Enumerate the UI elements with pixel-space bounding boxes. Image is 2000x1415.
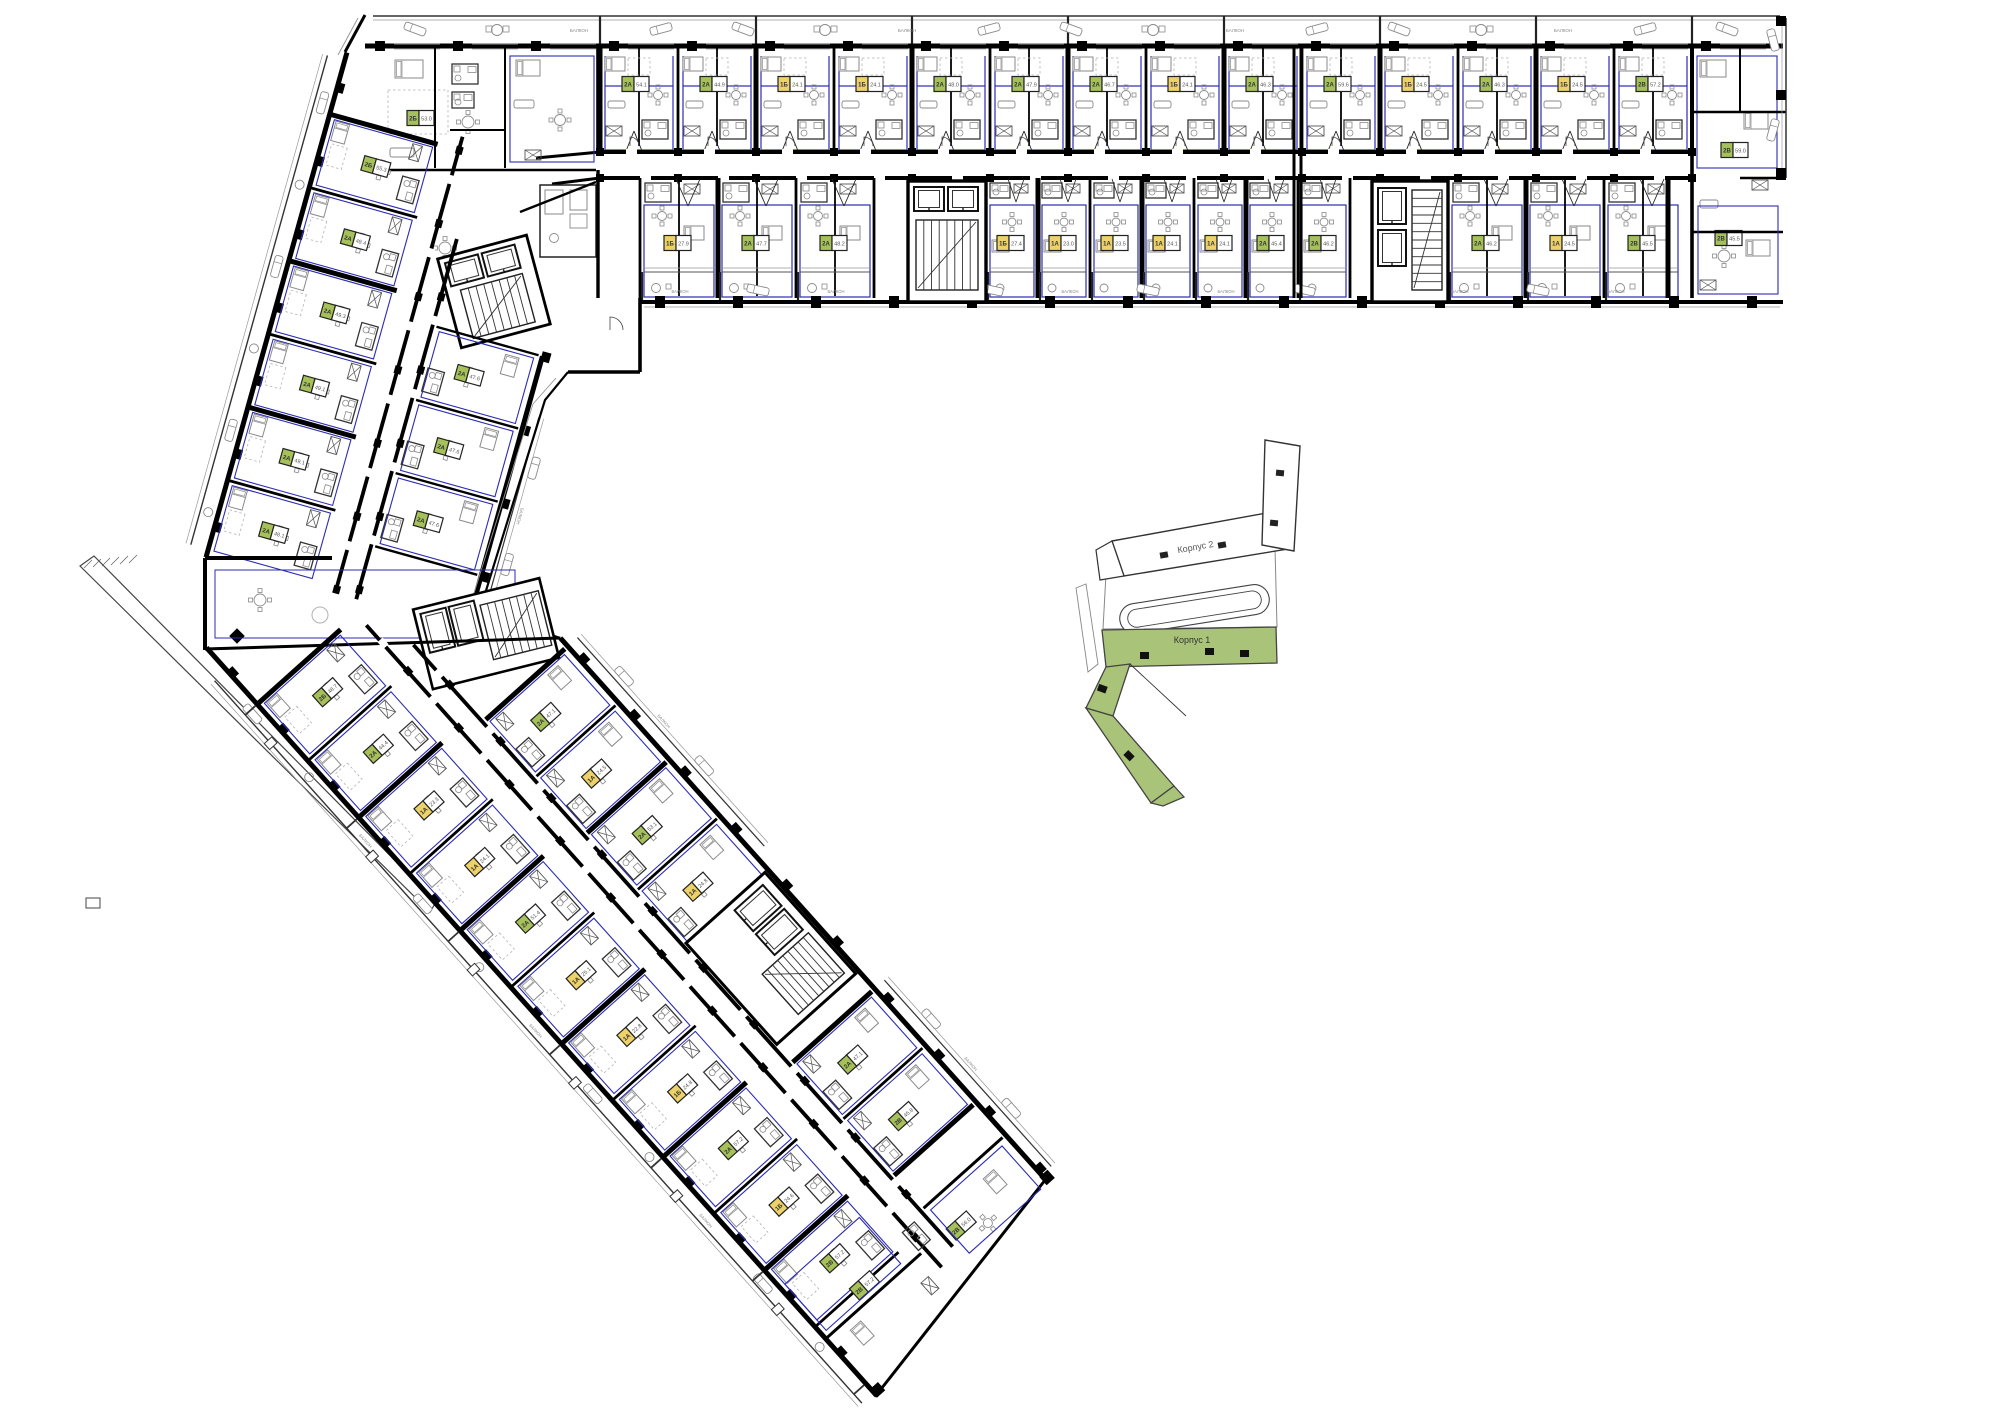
svg-text:27.4: 27.4 <box>1011 242 1022 248</box>
svg-text:2A: 2A <box>1482 83 1490 89</box>
svg-text:1Б: 1Б <box>1560 83 1568 89</box>
svg-text:47.9: 47.9 <box>1026 83 1037 89</box>
svg-text:1Б: 1Б <box>858 83 866 89</box>
svg-text:24.1: 24.1 <box>870 83 881 89</box>
svg-text:2A: 2A <box>624 83 632 89</box>
svg-text:Корпус 1: Корпус 1 <box>1174 635 1211 645</box>
svg-text:45.5: 45.5 <box>1729 237 1740 243</box>
svg-text:2A: 2A <box>1259 242 1267 248</box>
svg-text:1Б: 1Б <box>999 242 1007 248</box>
svg-text:БАЛКОН: БАЛКОН <box>1452 289 1469 294</box>
svg-text:2A: 2A <box>1474 242 1482 248</box>
svg-text:46.7: 46.7 <box>1104 83 1115 89</box>
svg-text:БАЛКОН: БАЛКОН <box>1218 289 1235 294</box>
svg-text:БАЛКОН: БАЛКОН <box>1226 28 1244 33</box>
svg-text:59.6: 59.6 <box>1338 83 1349 89</box>
svg-text:2A: 2A <box>1014 83 1022 89</box>
svg-text:46.2: 46.2 <box>1486 242 1497 248</box>
svg-text:46.3: 46.3 <box>1494 83 1505 89</box>
svg-text:БАЛКОН: БАЛКОН <box>672 289 689 294</box>
svg-text:53.0: 53.0 <box>421 117 432 123</box>
svg-text:БАЛКОН: БАЛКОН <box>1608 289 1625 294</box>
svg-text:24.1: 24.1 <box>1167 242 1178 248</box>
svg-text:БАЛКОН: БАЛКОН <box>1062 289 1079 294</box>
svg-text:48.2: 48.2 <box>834 242 845 248</box>
svg-text:1Б: 1Б <box>1404 83 1412 89</box>
svg-text:БАЛКОН: БАЛКОН <box>1554 28 1572 33</box>
svg-text:1A: 1A <box>1207 242 1215 248</box>
svg-text:2A: 2A <box>1311 242 1319 248</box>
svg-text:БАЛКОН: БАЛКОН <box>898 28 916 33</box>
svg-text:2A: 2A <box>1092 83 1100 89</box>
svg-text:47.7: 47.7 <box>756 242 767 248</box>
svg-text:57.2: 57.2 <box>1650 83 1661 89</box>
svg-text:1Б: 1Б <box>1170 83 1178 89</box>
svg-text:46.2: 46.2 <box>1323 242 1334 248</box>
svg-text:2A: 2A <box>936 83 944 89</box>
svg-text:2A: 2A <box>822 242 830 248</box>
svg-text:2B: 2B <box>1723 149 1731 155</box>
svg-text:24.5: 24.5 <box>1572 83 1583 89</box>
svg-text:59.0: 59.0 <box>1735 149 1746 155</box>
svg-text:44.9: 44.9 <box>714 83 725 89</box>
svg-text:2B: 2B <box>1638 83 1646 89</box>
svg-text:54.1: 54.1 <box>636 83 647 89</box>
svg-text:2Б: 2Б <box>409 117 417 123</box>
svg-text:1Б: 1Б <box>780 83 788 89</box>
svg-text:2A: 2A <box>702 83 710 89</box>
svg-text:1A: 1A <box>1051 242 1059 248</box>
svg-text:27.9: 27.9 <box>678 242 689 248</box>
svg-text:БАЛКОН: БАЛКОН <box>570 28 588 33</box>
svg-text:46.3: 46.3 <box>1260 83 1271 89</box>
svg-text:1Б: 1Б <box>666 242 674 248</box>
svg-text:2A: 2A <box>744 242 752 248</box>
svg-text:24.1: 24.1 <box>1219 242 1230 248</box>
svg-text:45.5: 45.5 <box>1642 242 1653 248</box>
svg-text:24.5: 24.5 <box>1564 242 1575 248</box>
svg-text:2A: 2A <box>1248 83 1256 89</box>
svg-text:1A: 1A <box>1552 242 1560 248</box>
svg-text:24.1: 24.1 <box>792 83 803 89</box>
svg-text:48.0: 48.0 <box>948 83 959 89</box>
svg-text:24.1: 24.1 <box>1182 83 1193 89</box>
svg-text:2A: 2A <box>1326 83 1334 89</box>
svg-text:24.5: 24.5 <box>1416 83 1427 89</box>
svg-text:2B: 2B <box>1717 237 1725 243</box>
svg-text:23.0: 23.0 <box>1063 242 1074 248</box>
svg-text:2B: 2B <box>1630 242 1638 248</box>
svg-text:БАЛКОН: БАЛКОН <box>828 289 845 294</box>
svg-text:1A: 1A <box>1103 242 1111 248</box>
svg-text:45.4: 45.4 <box>1271 242 1282 248</box>
svg-text:1A: 1A <box>1155 242 1163 248</box>
svg-text:23.5: 23.5 <box>1115 242 1126 248</box>
